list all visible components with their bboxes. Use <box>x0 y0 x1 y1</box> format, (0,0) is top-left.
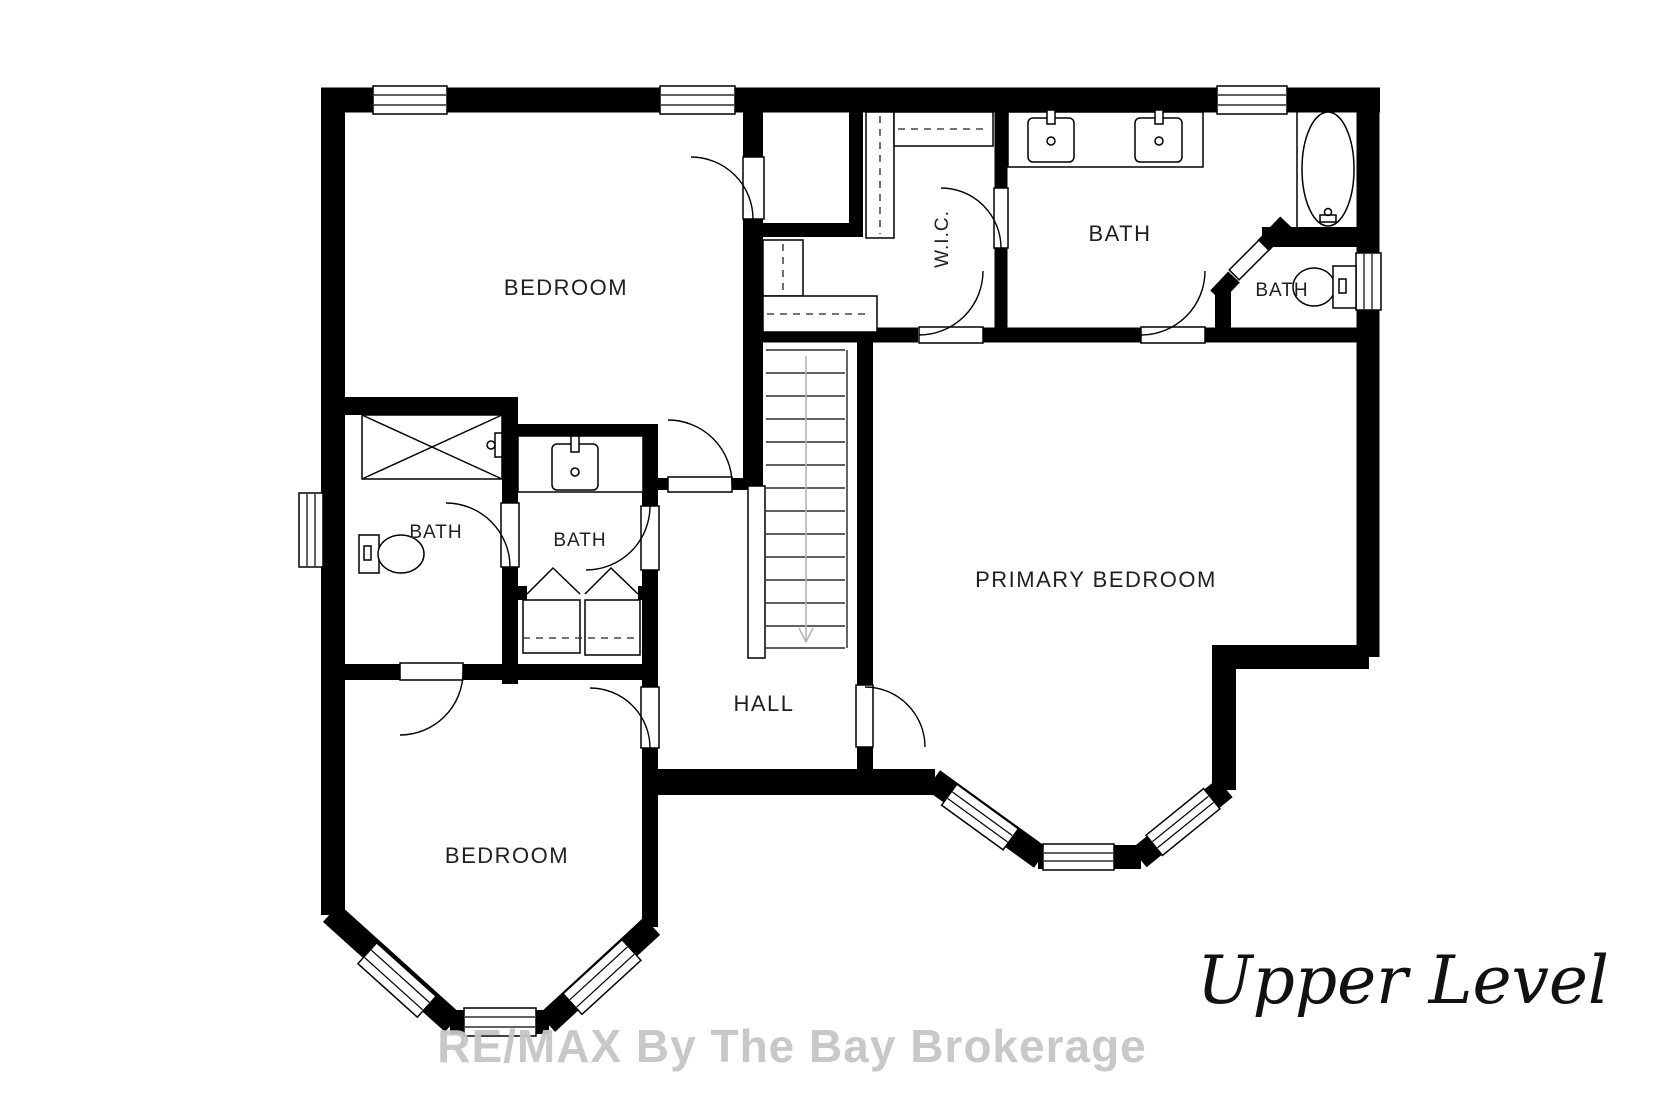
floor-plan-page: BEDROOM W.I.C. BATH BATH BATH BATH HALL … <box>0 0 1680 1120</box>
door-primary-to-wic <box>919 271 983 343</box>
vanity-single <box>518 436 643 492</box>
window-bay-bedroom-right <box>563 940 641 1015</box>
window-bath-left <box>299 493 323 567</box>
stair-railing <box>748 486 765 658</box>
door-bedroom-top-entry <box>668 420 732 492</box>
door-wc-diagonal <box>1229 240 1269 280</box>
level-label: Upper Level <box>1197 942 1609 1019</box>
closet-units <box>523 600 640 655</box>
vanity-double <box>1008 110 1203 167</box>
window-bay-primary-center <box>1043 844 1114 870</box>
room-label-bedroom-top: BEDROOM <box>504 275 628 300</box>
room-label-primary-bedroom: PRIMARY BEDROOM <box>975 567 1217 592</box>
window-bay-primary-left <box>942 784 1019 850</box>
door-bedroom-bottom-top <box>400 663 463 735</box>
bathtub <box>1297 108 1354 230</box>
room-label-hall: HALL <box>733 691 794 716</box>
room-label-bath-left: BATH <box>409 522 462 543</box>
window-bedroom-top-2 <box>660 86 735 114</box>
window-bay-bedroom-left <box>358 943 436 1017</box>
door-bedroom-top-closet <box>691 157 764 219</box>
door-primary-to-bath <box>1141 271 1205 343</box>
room-label-bath-wc: BATH <box>1255 280 1308 301</box>
room-label-bath-main: BATH <box>1088 221 1151 246</box>
wic-shelving <box>763 112 993 332</box>
room-label-bedroom-bottom: BEDROOM <box>445 843 569 868</box>
bifold-closet-doors <box>527 568 638 594</box>
stair-down-arrow <box>799 356 813 642</box>
shower <box>362 415 502 479</box>
door-bedroom-bottom-side <box>590 687 659 748</box>
window-bay-primary-right <box>1146 789 1220 856</box>
window-bath-main <box>1217 86 1287 114</box>
window-bath-wc <box>1356 253 1381 310</box>
brokerage-watermark: RE/MAX By The Bay Brokerage <box>437 1020 1147 1072</box>
window-bedroom-top-1 <box>373 86 447 114</box>
room-label-wic: W.I.C. <box>932 210 953 268</box>
floor-plan-canvas: BEDROOM W.I.C. BATH BATH BATH BATH HALL … <box>0 0 1680 1120</box>
door-primary-entry <box>856 685 925 747</box>
room-label-bath-mid: BATH <box>553 530 606 551</box>
